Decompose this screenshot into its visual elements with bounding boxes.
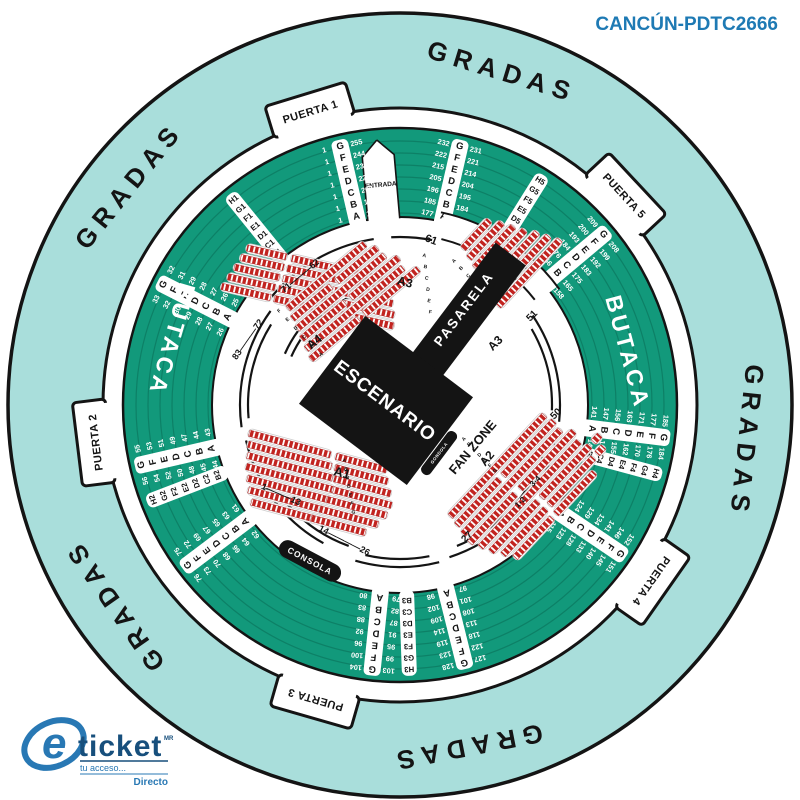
divider-row-letter: D xyxy=(372,627,380,639)
seat-number: 96 xyxy=(354,639,363,649)
seat-number: 80 xyxy=(359,591,368,601)
seat-number: 177 xyxy=(648,413,658,426)
section-code: D3 xyxy=(402,619,413,628)
seat-number: 103 xyxy=(382,666,395,676)
arena-seating-map: GRADASGRADASGRADASGRADASGRADASPUERTA 1PU… xyxy=(0,0,800,800)
seat-number: 184 xyxy=(656,447,667,461)
logo-tm: MR xyxy=(164,736,174,742)
divider-row-letter: E xyxy=(371,639,378,651)
divider-row-letter: G xyxy=(368,663,376,675)
section-code: B3 xyxy=(401,596,412,605)
seat-number: 162 xyxy=(621,443,631,456)
seat-number: 91 xyxy=(388,630,397,640)
divider-row-letter: A xyxy=(376,591,384,603)
seat-number: 83 xyxy=(358,603,367,613)
seat-number: 147 xyxy=(601,407,611,420)
divider-row-letter: B xyxy=(374,603,382,615)
section-strip[interactable]: B3C3D3E3F3G3H3 xyxy=(399,590,417,676)
section-code: G3 xyxy=(403,653,414,662)
seat-number: 185 xyxy=(660,414,670,427)
seat-number: 170 xyxy=(632,444,642,457)
seat-number: 155 xyxy=(609,441,619,454)
seat-number: 156 xyxy=(613,409,623,422)
logo-subbrand: Directo xyxy=(134,777,168,788)
seat-number: 104 xyxy=(348,662,362,672)
seat-number: 95 xyxy=(387,642,396,652)
section-code: F3 xyxy=(403,642,413,651)
seat-number: 176 xyxy=(644,446,654,459)
seat-number: 141 xyxy=(589,406,599,419)
logo-monogram: e xyxy=(42,719,66,768)
venue-code: CANCÚN-PDTC2666 xyxy=(595,13,778,35)
seat-number: 171 xyxy=(637,411,647,424)
seat-number: 92 xyxy=(355,627,364,637)
seat-number: 88 xyxy=(356,615,365,625)
seat-number: 163 xyxy=(625,410,635,423)
seat-number: 99 xyxy=(385,654,394,664)
seat-number: 100 xyxy=(351,650,364,660)
seat-number: 87 xyxy=(389,618,398,628)
logo-tagline: tu acceso... xyxy=(80,763,126,773)
eticket-logo: e ticket MR tu acceso... Directo xyxy=(17,711,174,788)
logo-brand: ticket xyxy=(78,730,162,763)
divider-row-letter: G xyxy=(657,433,669,442)
divider-row-letter: E xyxy=(634,431,646,439)
divider-row-letter: C xyxy=(373,615,381,627)
section-code: C3 xyxy=(401,607,412,616)
section-code: H3 xyxy=(403,665,414,674)
section-code: E3 xyxy=(402,630,413,639)
seat-number: 82 xyxy=(390,606,399,616)
